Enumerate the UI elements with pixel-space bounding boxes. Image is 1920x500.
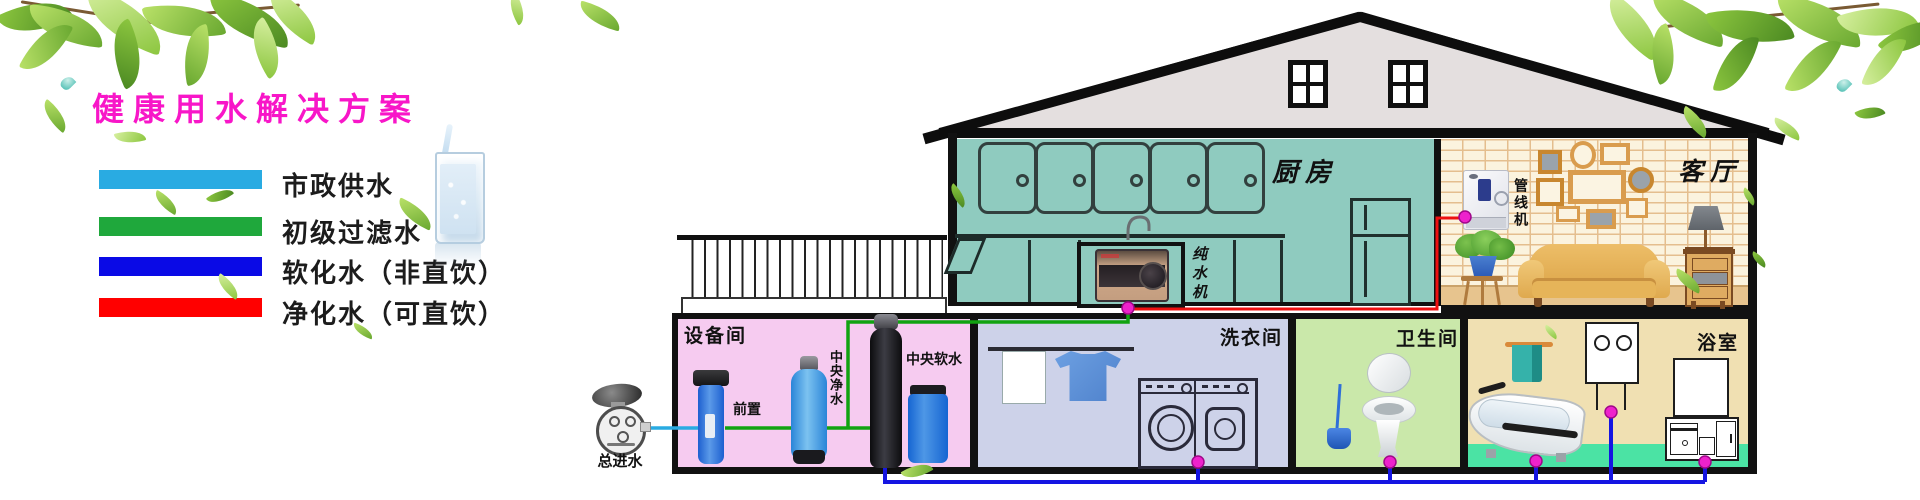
laundry-room-label: 洗衣间 xyxy=(1220,323,1283,350)
equipment-room-label: 设备间 xyxy=(684,321,747,348)
node-shower xyxy=(1605,406,1617,418)
bathroom-label: 浴室 xyxy=(1697,328,1739,355)
prefilter-label: 前置 xyxy=(733,399,761,419)
node-vanity xyxy=(1699,456,1711,468)
node-bathtub xyxy=(1530,455,1542,467)
central-softener-label: 中央软水 xyxy=(906,349,962,369)
central-purifier-label: 中央净水 xyxy=(826,350,845,412)
kitchen-label: 厨房 xyxy=(1272,152,1338,189)
node-ro-machine xyxy=(1122,302,1134,314)
node-toilet xyxy=(1384,456,1396,468)
pipe-nodes xyxy=(0,0,1920,500)
toilet-room-label: 卫生间 xyxy=(1396,324,1459,351)
node-pipeline-machine xyxy=(1459,211,1471,223)
node-washer xyxy=(1192,456,1204,468)
pipeline-machine-label: 管线机 xyxy=(1511,178,1531,228)
living-room-label: 客厅 xyxy=(1678,152,1742,188)
water-meter-label: 总进水 xyxy=(586,450,654,471)
water-solution-infographic: 健康用水解决方案 市政供水 初级过滤水 软化水（非直饮） 净化水（可直饮） xyxy=(0,0,1920,500)
ro-machine-label: 纯水机 xyxy=(1188,246,1209,308)
